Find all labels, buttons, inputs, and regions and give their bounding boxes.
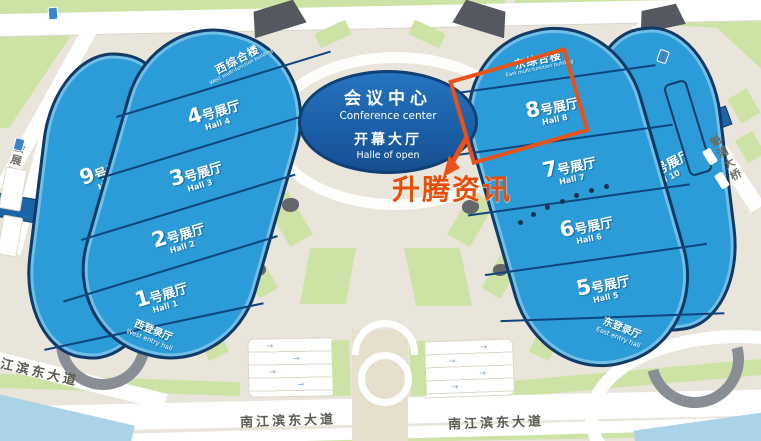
- parking-divider: [331, 340, 351, 397]
- route-dot: [604, 184, 609, 189]
- route-dot: [574, 193, 579, 198]
- green-patch: [727, 88, 760, 123]
- plaza-green: [300, 248, 356, 304]
- route-dot: [545, 205, 550, 210]
- fountain-circle: [358, 352, 412, 406]
- road-label-south-left: 南江滨东大道: [240, 408, 337, 430]
- opening-hall-cn: 开幕大厅: [354, 129, 422, 149]
- map-marker: [48, 7, 59, 21]
- route-dot: [518, 220, 523, 225]
- parking-lot-east: →→→→: [419, 338, 515, 398]
- parking-lot-west: →→→→: [247, 337, 336, 398]
- route-dot: [531, 212, 536, 217]
- plaza-green: [404, 248, 472, 306]
- green-patch: [735, 131, 761, 164]
- road-label-south-right: 南江滨东大道: [448, 410, 545, 432]
- exhibition-center-map: →→→→ →→→→ 9号展厅 Hall 9: [0, 0, 761, 441]
- company-annotation: 升腾资讯: [392, 168, 512, 208]
- opening-hall-en: Halle of open: [357, 150, 420, 161]
- route-dot: [589, 188, 594, 193]
- conference-center-title-cn: 会议中心: [344, 84, 432, 109]
- driveway-arc: [352, 320, 418, 355]
- route-dot: [560, 199, 565, 204]
- conference-center-title-en: Conference center: [339, 110, 436, 122]
